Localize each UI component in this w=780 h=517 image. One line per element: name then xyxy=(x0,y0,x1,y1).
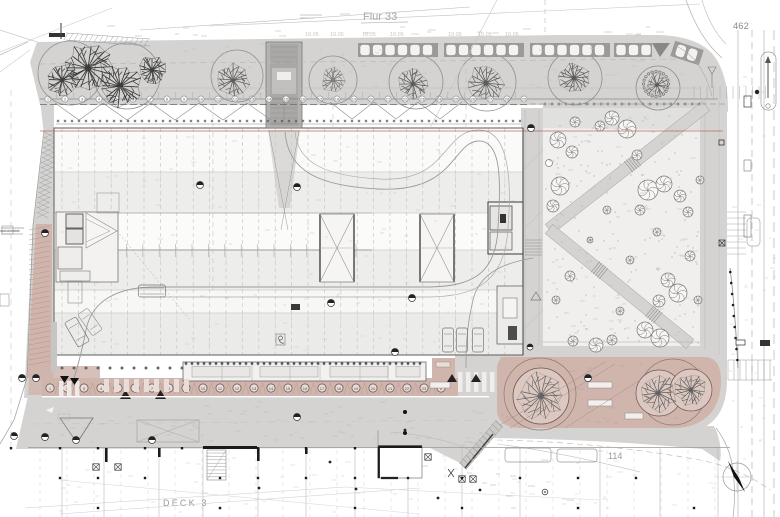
svg-text:10: 10 xyxy=(201,386,206,391)
svg-text:18: 18 xyxy=(335,97,340,102)
svg-text:20: 20 xyxy=(369,97,374,102)
svg-text:15: 15 xyxy=(284,97,289,102)
svg-text:19: 19 xyxy=(352,97,357,102)
svg-text:15: 15 xyxy=(286,386,291,391)
svg-text:27: 27 xyxy=(488,97,493,102)
svg-text:25: 25 xyxy=(454,97,459,102)
svg-text:14: 14 xyxy=(267,97,272,102)
svg-text:17: 17 xyxy=(320,386,325,391)
svg-text:22: 22 xyxy=(403,97,408,102)
svg-text:23: 23 xyxy=(420,97,425,102)
svg-text:14: 14 xyxy=(269,386,274,391)
svg-text:16: 16 xyxy=(303,386,308,391)
svg-text:16: 16 xyxy=(301,97,306,102)
svg-text:10.05: 10.05 xyxy=(505,32,519,38)
svg-text:21: 21 xyxy=(388,386,393,391)
svg-text:29: 29 xyxy=(522,97,527,102)
svg-text:114: 114 xyxy=(608,451,622,461)
svg-text:10.05: 10.05 xyxy=(448,32,462,38)
svg-text:10.05: 10.05 xyxy=(330,32,344,38)
svg-text:19: 19 xyxy=(354,386,359,391)
svg-text:20: 20 xyxy=(371,386,376,391)
svg-text:13: 13 xyxy=(252,386,257,391)
svg-text:Flur 33: Flur 33 xyxy=(363,11,397,23)
svg-text:24: 24 xyxy=(437,97,442,102)
svg-text:10.05: 10.05 xyxy=(305,32,319,38)
svg-text:asd Umfahrt: asd Umfahrt xyxy=(0,229,19,233)
svg-text:DECK 3: DECK 3 xyxy=(163,498,209,508)
svg-text:10.05: 10.05 xyxy=(478,32,492,38)
svg-text:10: 10 xyxy=(199,97,204,102)
svg-text:10.05: 10.05 xyxy=(390,32,404,38)
svg-text:26: 26 xyxy=(471,97,476,102)
svg-text:12: 12 xyxy=(233,97,238,102)
svg-text:18: 18 xyxy=(337,386,342,391)
svg-text:23: 23 xyxy=(422,386,427,391)
svg-text:22: 22 xyxy=(405,386,410,391)
svg-text:12: 12 xyxy=(235,386,240,391)
svg-text:21: 21 xyxy=(386,97,391,102)
svg-text:462: 462 xyxy=(733,21,749,32)
